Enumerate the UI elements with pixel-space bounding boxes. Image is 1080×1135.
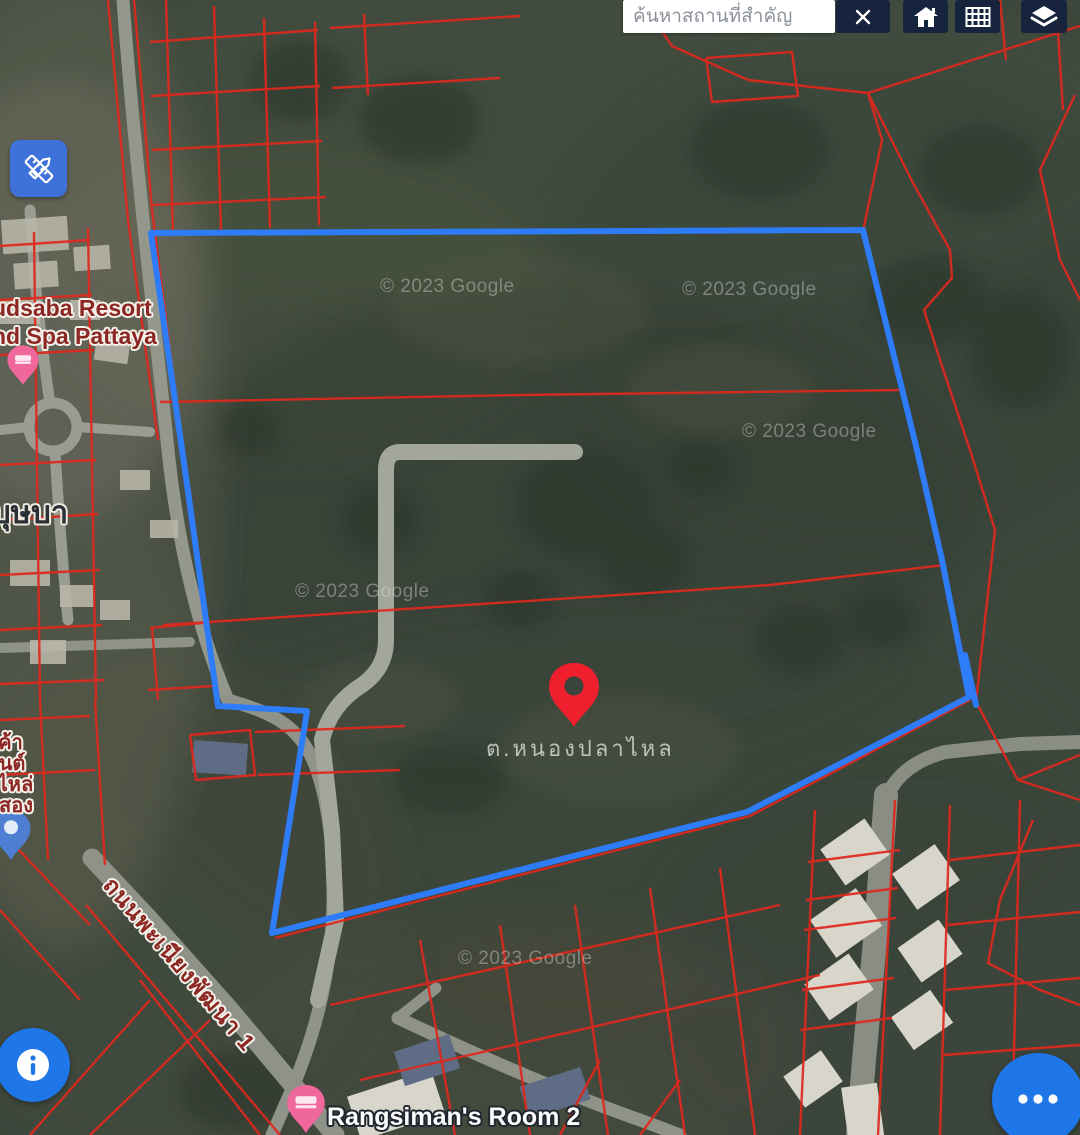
search-box [623, 0, 835, 33]
resort-label-line2: nd Spa Pattaya [0, 322, 157, 350]
map-app: udsaba Resort nd Spa Pattaya บุษบา าค้า … [0, 0, 1080, 1135]
google-watermark: © 2023 Google [458, 948, 593, 970]
guesthouse-label: Rangsiman's Room 2 [327, 1102, 580, 1132]
google-watermark: © 2023 Google [742, 421, 877, 443]
shop-label-line3: ะไหล่ [0, 775, 33, 796]
google-watermark: © 2023 Google [682, 279, 817, 301]
shop-label-line4: ือสอง [0, 796, 33, 817]
info-icon [13, 1045, 53, 1085]
layers-button[interactable] [1021, 0, 1067, 33]
shop-label: าค้า ยนต์ ะไหล่ ือสอง [0, 733, 33, 817]
more-options-button[interactable] [992, 1053, 1080, 1135]
draw-tool-button[interactable] [10, 140, 67, 197]
district-label: บุษบา [0, 494, 68, 531]
resort-label: udsaba Resort nd Spa Pattaya [0, 294, 157, 350]
shop-label-line1: าค้า [0, 733, 33, 754]
plot-marker-caption: ต.หนองปลาไหล [486, 736, 675, 762]
home-icon [913, 5, 939, 29]
grid-button[interactable] [955, 0, 1000, 33]
google-watermark: © 2023 Google [380, 276, 515, 298]
shop-label-line2: ยนต์ [0, 754, 33, 775]
grid-icon [965, 6, 991, 28]
resort-label-line1: udsaba Resort [0, 294, 157, 322]
layers-icon [1030, 4, 1058, 30]
google-watermark: © 2023 Google [295, 581, 430, 603]
home-button[interactable] [903, 0, 948, 33]
search-clear-button[interactable] [836, 0, 890, 33]
close-icon [853, 7, 873, 27]
ellipsis-icon [1012, 1089, 1064, 1109]
search-input[interactable] [623, 0, 835, 33]
pencil-ruler-icon [21, 151, 57, 187]
